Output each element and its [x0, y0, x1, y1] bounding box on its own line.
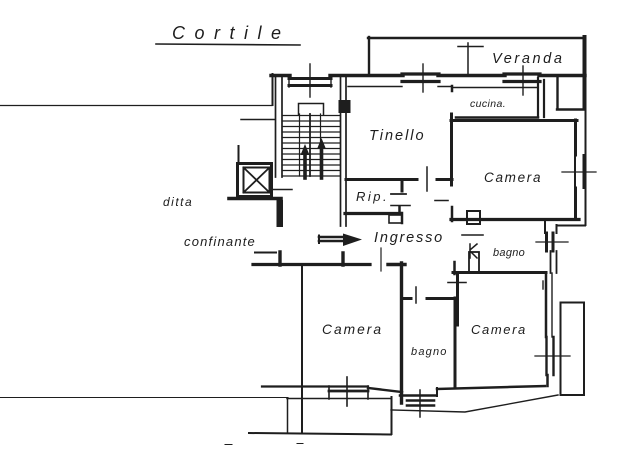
svg-text:Ingresso: Ingresso: [374, 230, 444, 246]
svg-text:Camera: Camera: [484, 170, 542, 185]
svg-text:ditta: ditta: [163, 195, 193, 209]
svg-text:Camera: Camera: [471, 322, 527, 337]
svg-text:bagno: bagno: [411, 346, 448, 358]
svg-text:Rip.: Rip.: [356, 189, 389, 204]
svg-text:confinante: confinante: [184, 234, 256, 249]
svg-text:Veranda: Veranda: [492, 51, 564, 67]
svg-text:Cortile: Cortile: [172, 23, 291, 43]
svg-text:Tinello: Tinello: [369, 128, 426, 144]
svg-text:cucina.: cucina.: [470, 98, 506, 110]
svg-text:Camera: Camera: [322, 322, 383, 337]
svg-text:bagno: bagno: [493, 247, 525, 259]
